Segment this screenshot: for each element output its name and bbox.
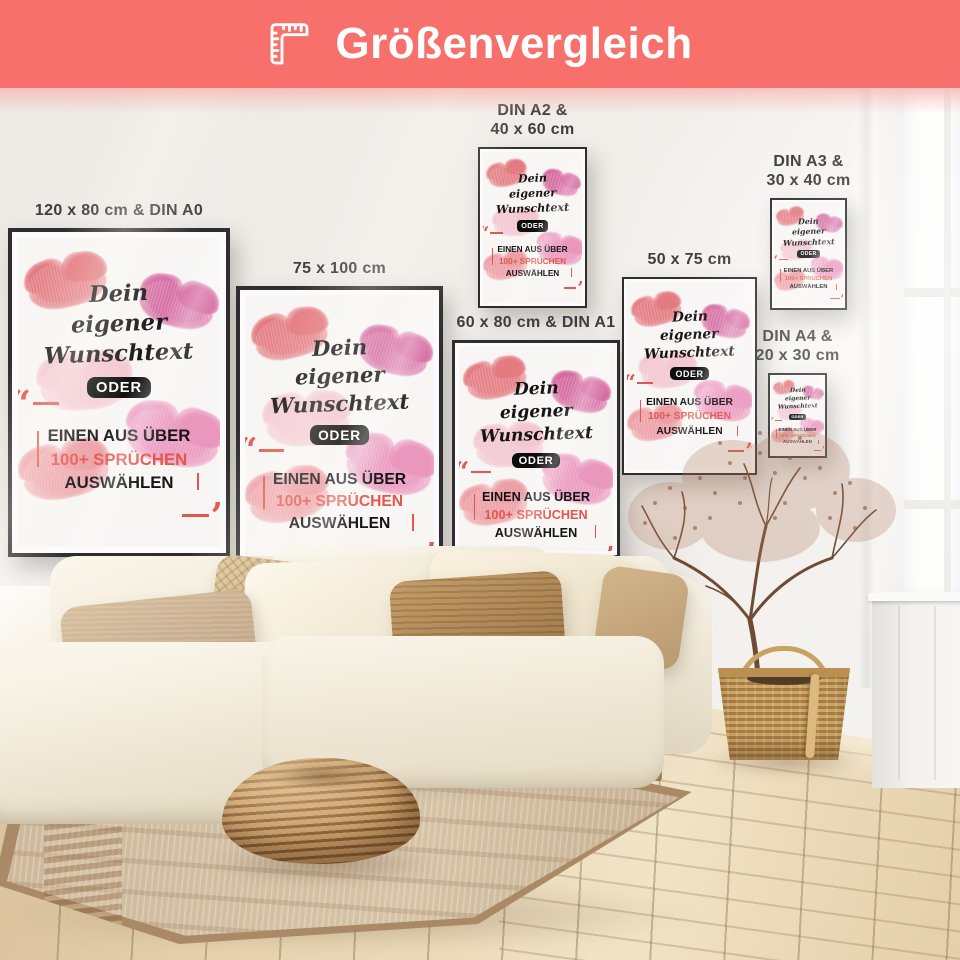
quote-line	[263, 476, 265, 509]
poster-size-label: DIN A4 &20 x 30 cm	[756, 328, 840, 366]
oder-badge: ODER	[797, 250, 819, 258]
poster-artwork: Dein eigener Wunschtext ODER “ EINEN AUS…	[18, 238, 221, 548]
script-line: Dein	[518, 172, 547, 186]
quote-line	[492, 248, 493, 265]
quote-line	[836, 284, 837, 290]
close-quote: ”	[182, 499, 220, 534]
bold-line: AUSWÄHLEN	[482, 524, 590, 542]
bold-line: EINEN AUS ÜBER	[482, 488, 590, 506]
script-line: eigener	[294, 362, 384, 390]
bold-line: AUSWÄHLEN	[497, 268, 567, 280]
poster-size-label: 60 x 80 cm & DIN A1	[457, 314, 616, 333]
script-line: Dein	[89, 280, 149, 308]
poster-size-label: 50 x 75 cm	[648, 251, 732, 270]
quote-line	[197, 473, 199, 491]
poster-size-label: 75 x 100 cm	[293, 260, 386, 279]
script-line: eigener	[792, 227, 826, 237]
header-title: Größenvergleich	[335, 19, 692, 69]
basket-strap	[805, 674, 820, 758]
poster: 120 x 80 cm & DIN A0 Dein eigener Wunsch…	[8, 228, 230, 557]
oder-badge: ODER	[517, 220, 548, 231]
quote-block: “ EINEN AUS ÜBER 100+ SPRÜCHEN AUSWÄHLEN…	[48, 424, 191, 495]
quote-block: “ EINEN AUS ÜBER 100+ SPRÜCHEN AUSWÄHLEN…	[497, 244, 567, 279]
quote-line	[780, 269, 781, 281]
script-line: Wunschtext	[496, 201, 570, 216]
script-line: Dein	[312, 335, 368, 361]
script-line: eigener	[509, 187, 557, 202]
poster: 60 x 80 cm & DIN A1 Dein eigener Wunscht…	[452, 340, 620, 558]
script-line: Dein	[513, 379, 558, 400]
script-line: eigener	[71, 309, 168, 339]
quote-line	[571, 268, 572, 277]
poster-frame: Dein eigener Wunschtext ODER “ EINEN AUS…	[452, 340, 620, 558]
script-line: Wunschtext	[44, 339, 194, 370]
bold-line: EINEN AUS ÜBER	[784, 267, 834, 275]
poster-artwork: Dein eigener Wunschtext ODER “ EINEN AUS…	[774, 202, 843, 306]
bold-line-accent: 100+ SPRÜCHEN	[784, 275, 834, 283]
open-quote: “	[18, 387, 60, 422]
close-quote: ”	[830, 293, 843, 305]
bold-line-accent: 100+ SPRÜCHEN	[48, 448, 191, 472]
poster-size-label: DIN A2 &40 x 60 cm	[491, 102, 575, 140]
oder-badge: ODER	[310, 425, 370, 444]
bold-line: AUSWÄHLEN	[784, 283, 834, 291]
quote-line	[37, 431, 39, 466]
quote-line	[595, 525, 596, 538]
script-line: Wunschtext	[644, 344, 735, 363]
bold-line: AUSWÄHLEN	[273, 513, 406, 535]
bold-line: EINEN AUS ÜBER	[273, 469, 406, 491]
quote-block: “ EINEN AUS ÜBER 100+ SPRÜCHEN AUSWÄHLEN…	[273, 469, 406, 536]
poster: DIN A3 &30 x 40 cm Dein eigener Wunschte…	[770, 198, 847, 310]
open-quote: “	[459, 460, 491, 487]
script-line: eigener	[660, 326, 719, 344]
bold-line-accent: 100+ SPRÜCHEN	[497, 256, 567, 268]
bold-line: EINEN AUS ÜBER	[497, 244, 567, 256]
poster-artwork: Dein eigener Wunschtext ODER “ EINEN AUS…	[245, 295, 434, 558]
open-quote: “	[483, 226, 504, 243]
script-line: Dein	[671, 308, 707, 325]
close-quote: ”	[398, 539, 434, 558]
header-banner: Größenvergleich	[0, 0, 960, 88]
quote-line	[412, 514, 413, 530]
poster-frame: Dein eigener Wunschtext ODER “ EINEN AUS…	[770, 198, 847, 310]
bold-line-accent: 100+ SPRÜCHEN	[482, 506, 590, 524]
size-comparison-graphic: 120 x 80 cm & DIN A0 Dein eigener Wunsch…	[0, 0, 960, 960]
script-line: Wunschtext	[782, 237, 834, 248]
oder-badge: ODER	[670, 367, 709, 380]
open-quote: “	[774, 254, 788, 266]
poster-text: Dein eigener Wunschtext ODER “ EINEN AUS…	[245, 295, 434, 558]
open-quote: “	[627, 373, 653, 394]
open-quote: “	[245, 434, 284, 467]
quote-line	[474, 494, 475, 521]
poster-text: Dein eigener Wunschtext ODER “ EINEN AUS…	[483, 152, 583, 304]
poster-frame: Dein eigener Wunschtext ODER “ EINEN AUS…	[478, 147, 587, 308]
poster-frame: Dein eigener Wunschtext ODER “ EINEN AUS…	[236, 286, 443, 567]
close-quote: ”	[564, 281, 583, 298]
oder-badge: ODER	[512, 453, 561, 469]
poster: 75 x 100 cm Dein eigener Wunschtext ODER…	[236, 286, 443, 567]
bold-line: EINEN AUS ÜBER	[48, 424, 191, 448]
quote-block: “ EINEN AUS ÜBER 100+ SPRÜCHEN AUSWÄHLEN…	[784, 267, 834, 292]
script-line: Wunschtext	[479, 424, 593, 448]
poster-text: Dein eigener Wunschtext ODER “ EINEN AUS…	[459, 347, 613, 551]
script-line: Dein	[798, 217, 819, 227]
wicker-pouf	[222, 758, 420, 864]
script-line: eigener	[499, 402, 572, 424]
poster-text: Dein eigener Wunschtext ODER “ EINEN AUS…	[774, 202, 843, 306]
poster-artwork: Dein eigener Wunschtext ODER “ EINEN AUS…	[483, 152, 583, 304]
poster-frame: Dein eigener Wunschtext ODER “ EINEN AUS…	[8, 228, 230, 557]
poster: DIN A2 &40 x 60 cm Dein eigener Wunschte…	[478, 147, 587, 308]
bold-line: AUSWÄHLEN	[48, 471, 191, 495]
poster-size-label: 120 x 80 cm & DIN A0	[35, 202, 203, 221]
ruler-icon	[267, 18, 317, 68]
oder-badge: ODER	[87, 377, 151, 398]
bold-line-accent: 100+ SPRÜCHEN	[273, 491, 406, 513]
wicker-basket	[718, 668, 850, 760]
script-line: Wunschtext	[270, 389, 410, 418]
poster-artwork: Dein eigener Wunschtext ODER “ EINEN AUS…	[459, 347, 613, 551]
poster-size-label: DIN A3 &30 x 40 cm	[767, 153, 851, 191]
quote-block: “ EINEN AUS ÜBER 100+ SPRÜCHEN AUSWÄHLEN…	[482, 488, 590, 542]
poster-text: Dein eigener Wunschtext ODER “ EINEN AUS…	[18, 238, 221, 548]
basket-rim	[718, 668, 850, 677]
